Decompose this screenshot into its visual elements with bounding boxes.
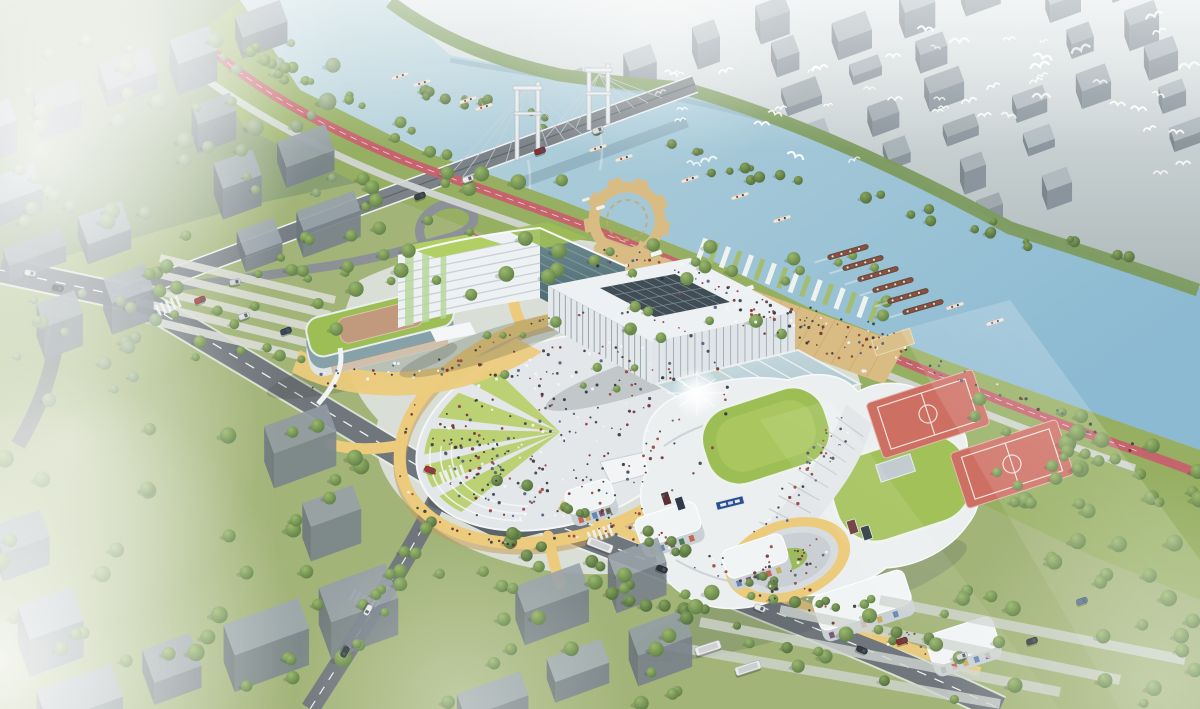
- architectural-rendering: [0, 0, 1200, 709]
- aerial-rendering-canvas: [0, 0, 1200, 709]
